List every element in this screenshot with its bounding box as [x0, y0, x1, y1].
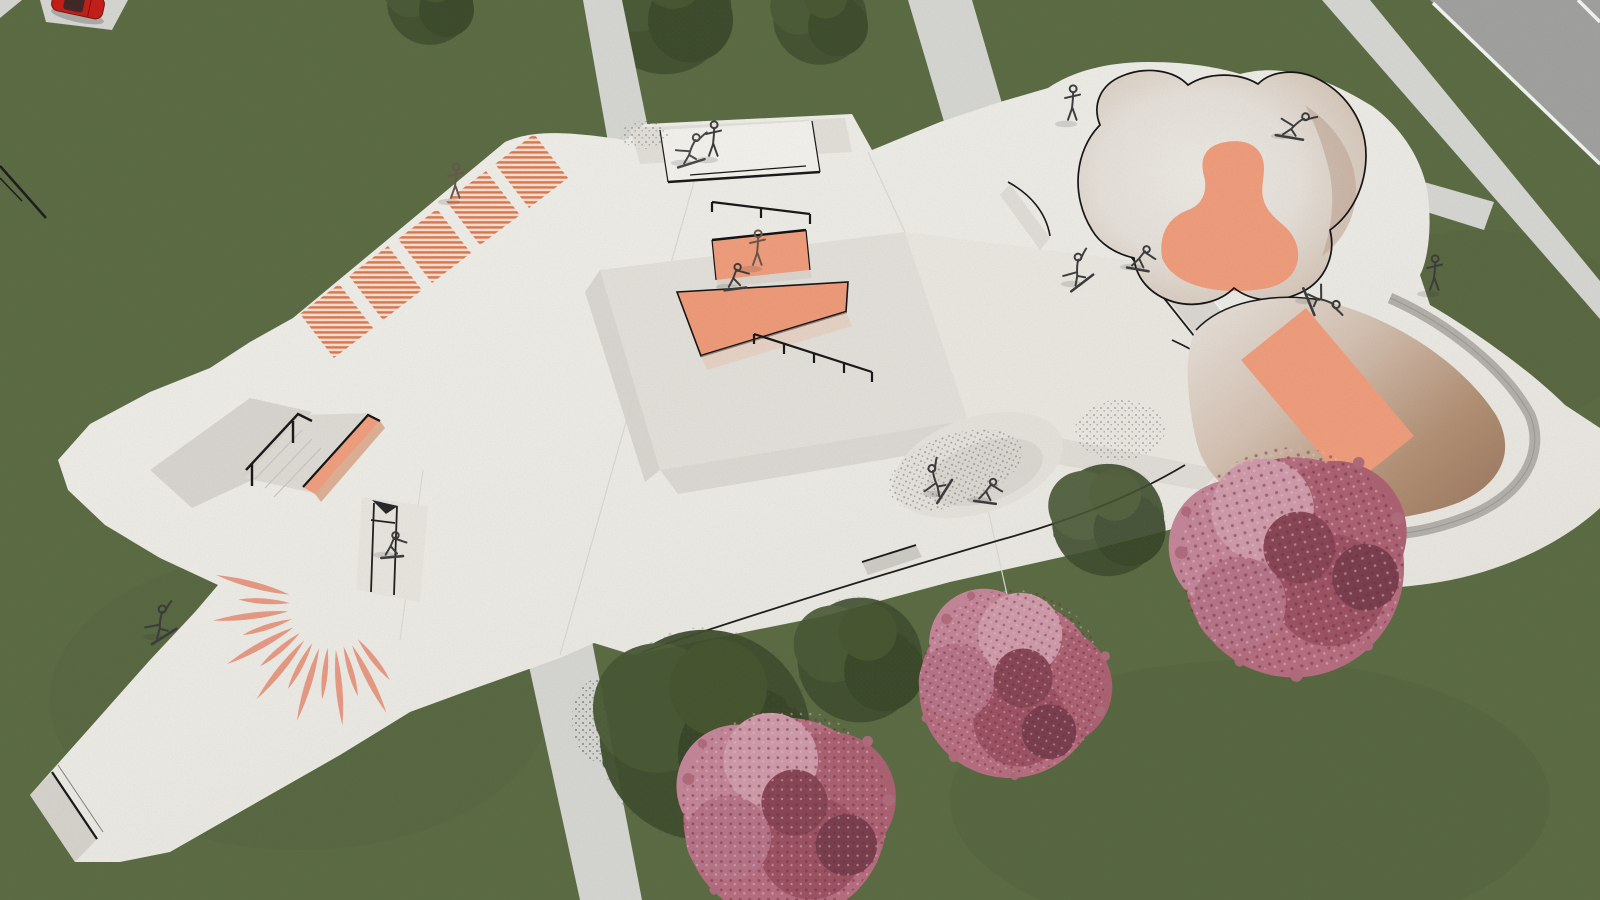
render-viewport — [0, 0, 1600, 900]
grain-overlay — [0, 0, 1600, 900]
scene-layers — [0, 0, 1600, 900]
skatepark-aerial-render — [0, 0, 1600, 900]
